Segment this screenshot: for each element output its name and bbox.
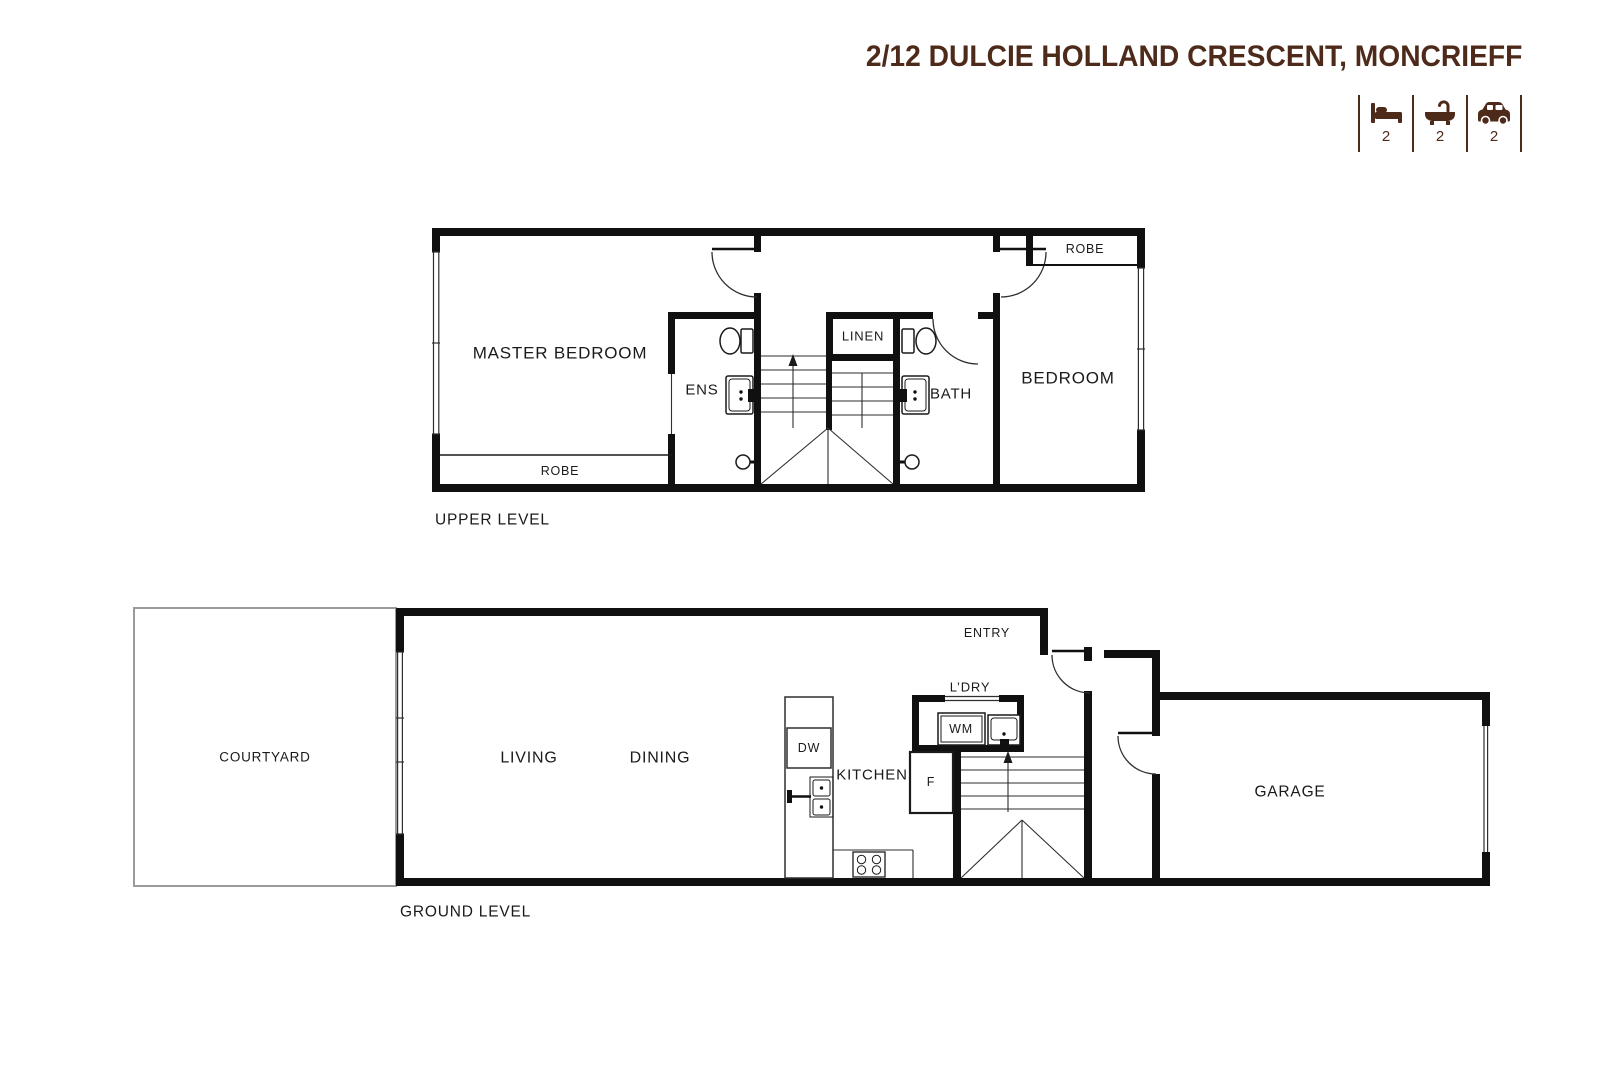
room-label-fridge: F xyxy=(927,775,935,789)
ground-walls xyxy=(396,608,1490,886)
courtyard-outline xyxy=(134,608,396,886)
room-label-bedroom: BEDROOM xyxy=(1021,369,1114,388)
room-label-entry: ENTRY xyxy=(964,626,1010,640)
bath-door-arc xyxy=(933,319,978,364)
laundry-tub-icon xyxy=(988,715,1020,746)
up-arrow-icon xyxy=(789,354,798,428)
bedrooms-count: 2 xyxy=(1382,129,1390,144)
room-label-robe-bedroom: ROBE xyxy=(1066,242,1105,256)
bathrooms-count: 2 xyxy=(1436,129,1444,144)
car-icon xyxy=(1475,98,1513,128)
upper-level-plan: MASTER BEDROOM ROBE ENS LINEN BATH BEDRO… xyxy=(420,220,1160,535)
room-label-kitchen: KITCHEN xyxy=(836,767,907,784)
cars-count: 2 xyxy=(1490,129,1498,144)
property-stats: 2 2 2 xyxy=(1358,95,1522,152)
ens-sink-icon xyxy=(726,376,756,414)
kitchen-island xyxy=(785,697,833,878)
master-bedroom-door xyxy=(712,249,761,297)
kitchen-bench xyxy=(833,850,913,878)
living-window-wall xyxy=(396,652,404,834)
bath-icon xyxy=(1421,98,1459,128)
stat-bedrooms: 2 xyxy=(1358,95,1412,152)
room-label-washing-machine: WM xyxy=(949,722,973,736)
bath-sink-icon xyxy=(899,376,929,414)
property-address-title: 2/12 DULCIE HOLLAND CRESCENT, MONCRIEFF xyxy=(866,40,1522,74)
ground-stairs xyxy=(961,751,1084,878)
room-label-living: LIVING xyxy=(500,750,557,767)
upper-level-label: UPPER LEVEL xyxy=(435,512,550,529)
room-label-ens: ENS xyxy=(685,382,718,399)
room-label-garage: GARAGE xyxy=(1254,784,1325,801)
room-label-dishwasher: DW xyxy=(798,741,820,755)
stat-bathrooms: 2 xyxy=(1412,95,1466,152)
room-label-dining: DINING xyxy=(630,750,691,767)
ground-level-plan: COURTYARD LIVING DINING DW KITCHEN F L’D… xyxy=(130,600,1500,930)
upper-stairs xyxy=(761,354,893,484)
bath-toilet-icon xyxy=(902,328,936,354)
laundry-window xyxy=(945,697,999,701)
upper-window-left xyxy=(432,252,440,434)
room-label-linen: LINEN xyxy=(842,329,884,344)
room-label-master-bedroom: MASTER BEDROOM xyxy=(473,344,648,363)
room-label-laundry: L’DRY xyxy=(950,680,991,695)
ens-toilet-icon xyxy=(720,328,753,354)
bed-icon xyxy=(1367,98,1405,128)
cooktop-icon xyxy=(853,852,885,877)
garage-door xyxy=(1484,726,1488,852)
garage-entry-door xyxy=(1118,733,1156,774)
stat-cars: 2 xyxy=(1466,95,1522,152)
room-label-robe-master: ROBE xyxy=(541,464,580,478)
ground-level-label: GROUND LEVEL xyxy=(400,904,531,921)
room-label-courtyard: COURTYARD xyxy=(219,750,310,765)
room-label-bath: BATH xyxy=(930,386,972,403)
up-arrow-icon xyxy=(1004,751,1013,812)
floorplan-page: { "title": "2/12 DULCIE HOLLAND CRESCENT… xyxy=(0,0,1620,1080)
bedroom-door xyxy=(997,249,1046,297)
upper-window-right xyxy=(1137,268,1145,430)
